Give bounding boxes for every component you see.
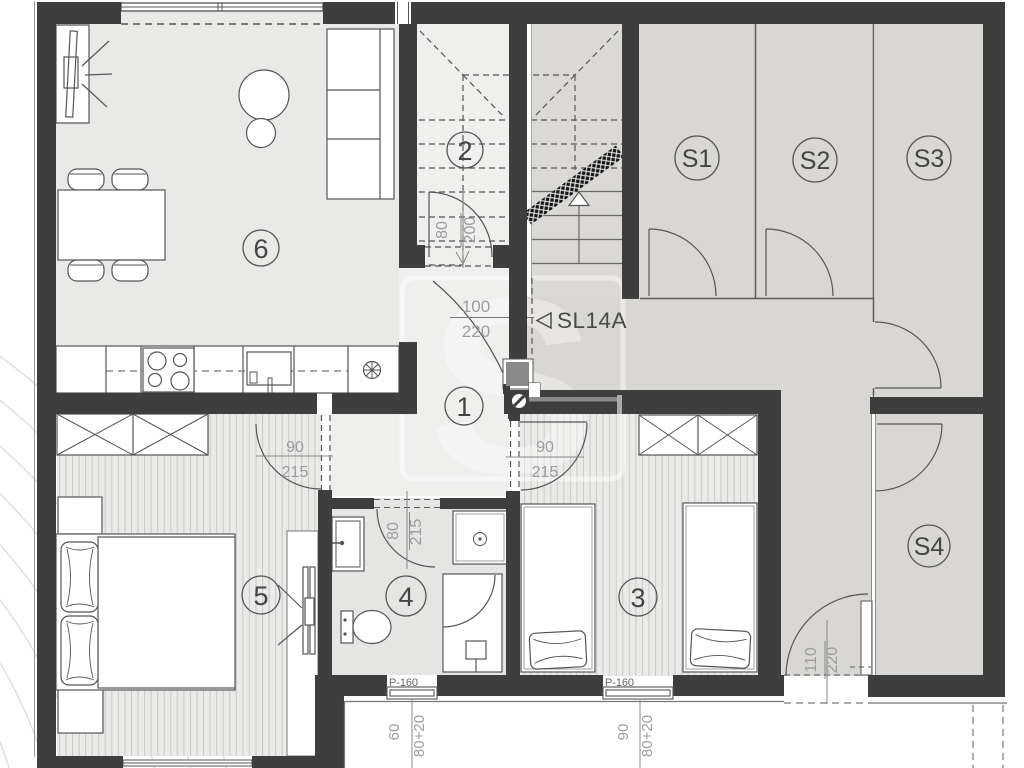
svg-text:90: 90 xyxy=(536,439,554,456)
svg-text:220: 220 xyxy=(824,647,841,674)
svg-text:60: 60 xyxy=(386,724,403,741)
svg-text:P-160: P-160 xyxy=(389,677,418,689)
svg-text:P-160: P-160 xyxy=(605,677,634,689)
svg-text:2: 2 xyxy=(457,136,472,166)
svg-text:215: 215 xyxy=(282,464,309,481)
svg-text:6: 6 xyxy=(253,234,268,264)
svg-text:1: 1 xyxy=(456,392,471,422)
svg-text:3: 3 xyxy=(630,583,645,613)
svg-text:S3: S3 xyxy=(914,145,945,173)
svg-text:220: 220 xyxy=(462,322,490,341)
svg-text:80+20: 80+20 xyxy=(639,715,656,757)
svg-text:4: 4 xyxy=(398,582,413,612)
svg-text:S1: S1 xyxy=(682,145,713,173)
svg-text:SL14A: SL14A xyxy=(557,308,627,333)
svg-text:215: 215 xyxy=(408,519,425,546)
svg-text:100: 100 xyxy=(462,297,490,316)
svg-text:110: 110 xyxy=(803,647,820,673)
svg-text:S4: S4 xyxy=(914,533,945,561)
svg-text:5: 5 xyxy=(253,581,268,611)
svg-text:S2: S2 xyxy=(800,147,831,175)
svg-text:200: 200 xyxy=(462,217,479,244)
svg-text:90: 90 xyxy=(286,439,304,456)
svg-text:80: 80 xyxy=(434,221,451,239)
svg-text:215: 215 xyxy=(532,464,559,481)
svg-text:80+20: 80+20 xyxy=(411,715,428,757)
svg-text:90: 90 xyxy=(615,724,632,741)
svg-text:80: 80 xyxy=(385,522,402,540)
